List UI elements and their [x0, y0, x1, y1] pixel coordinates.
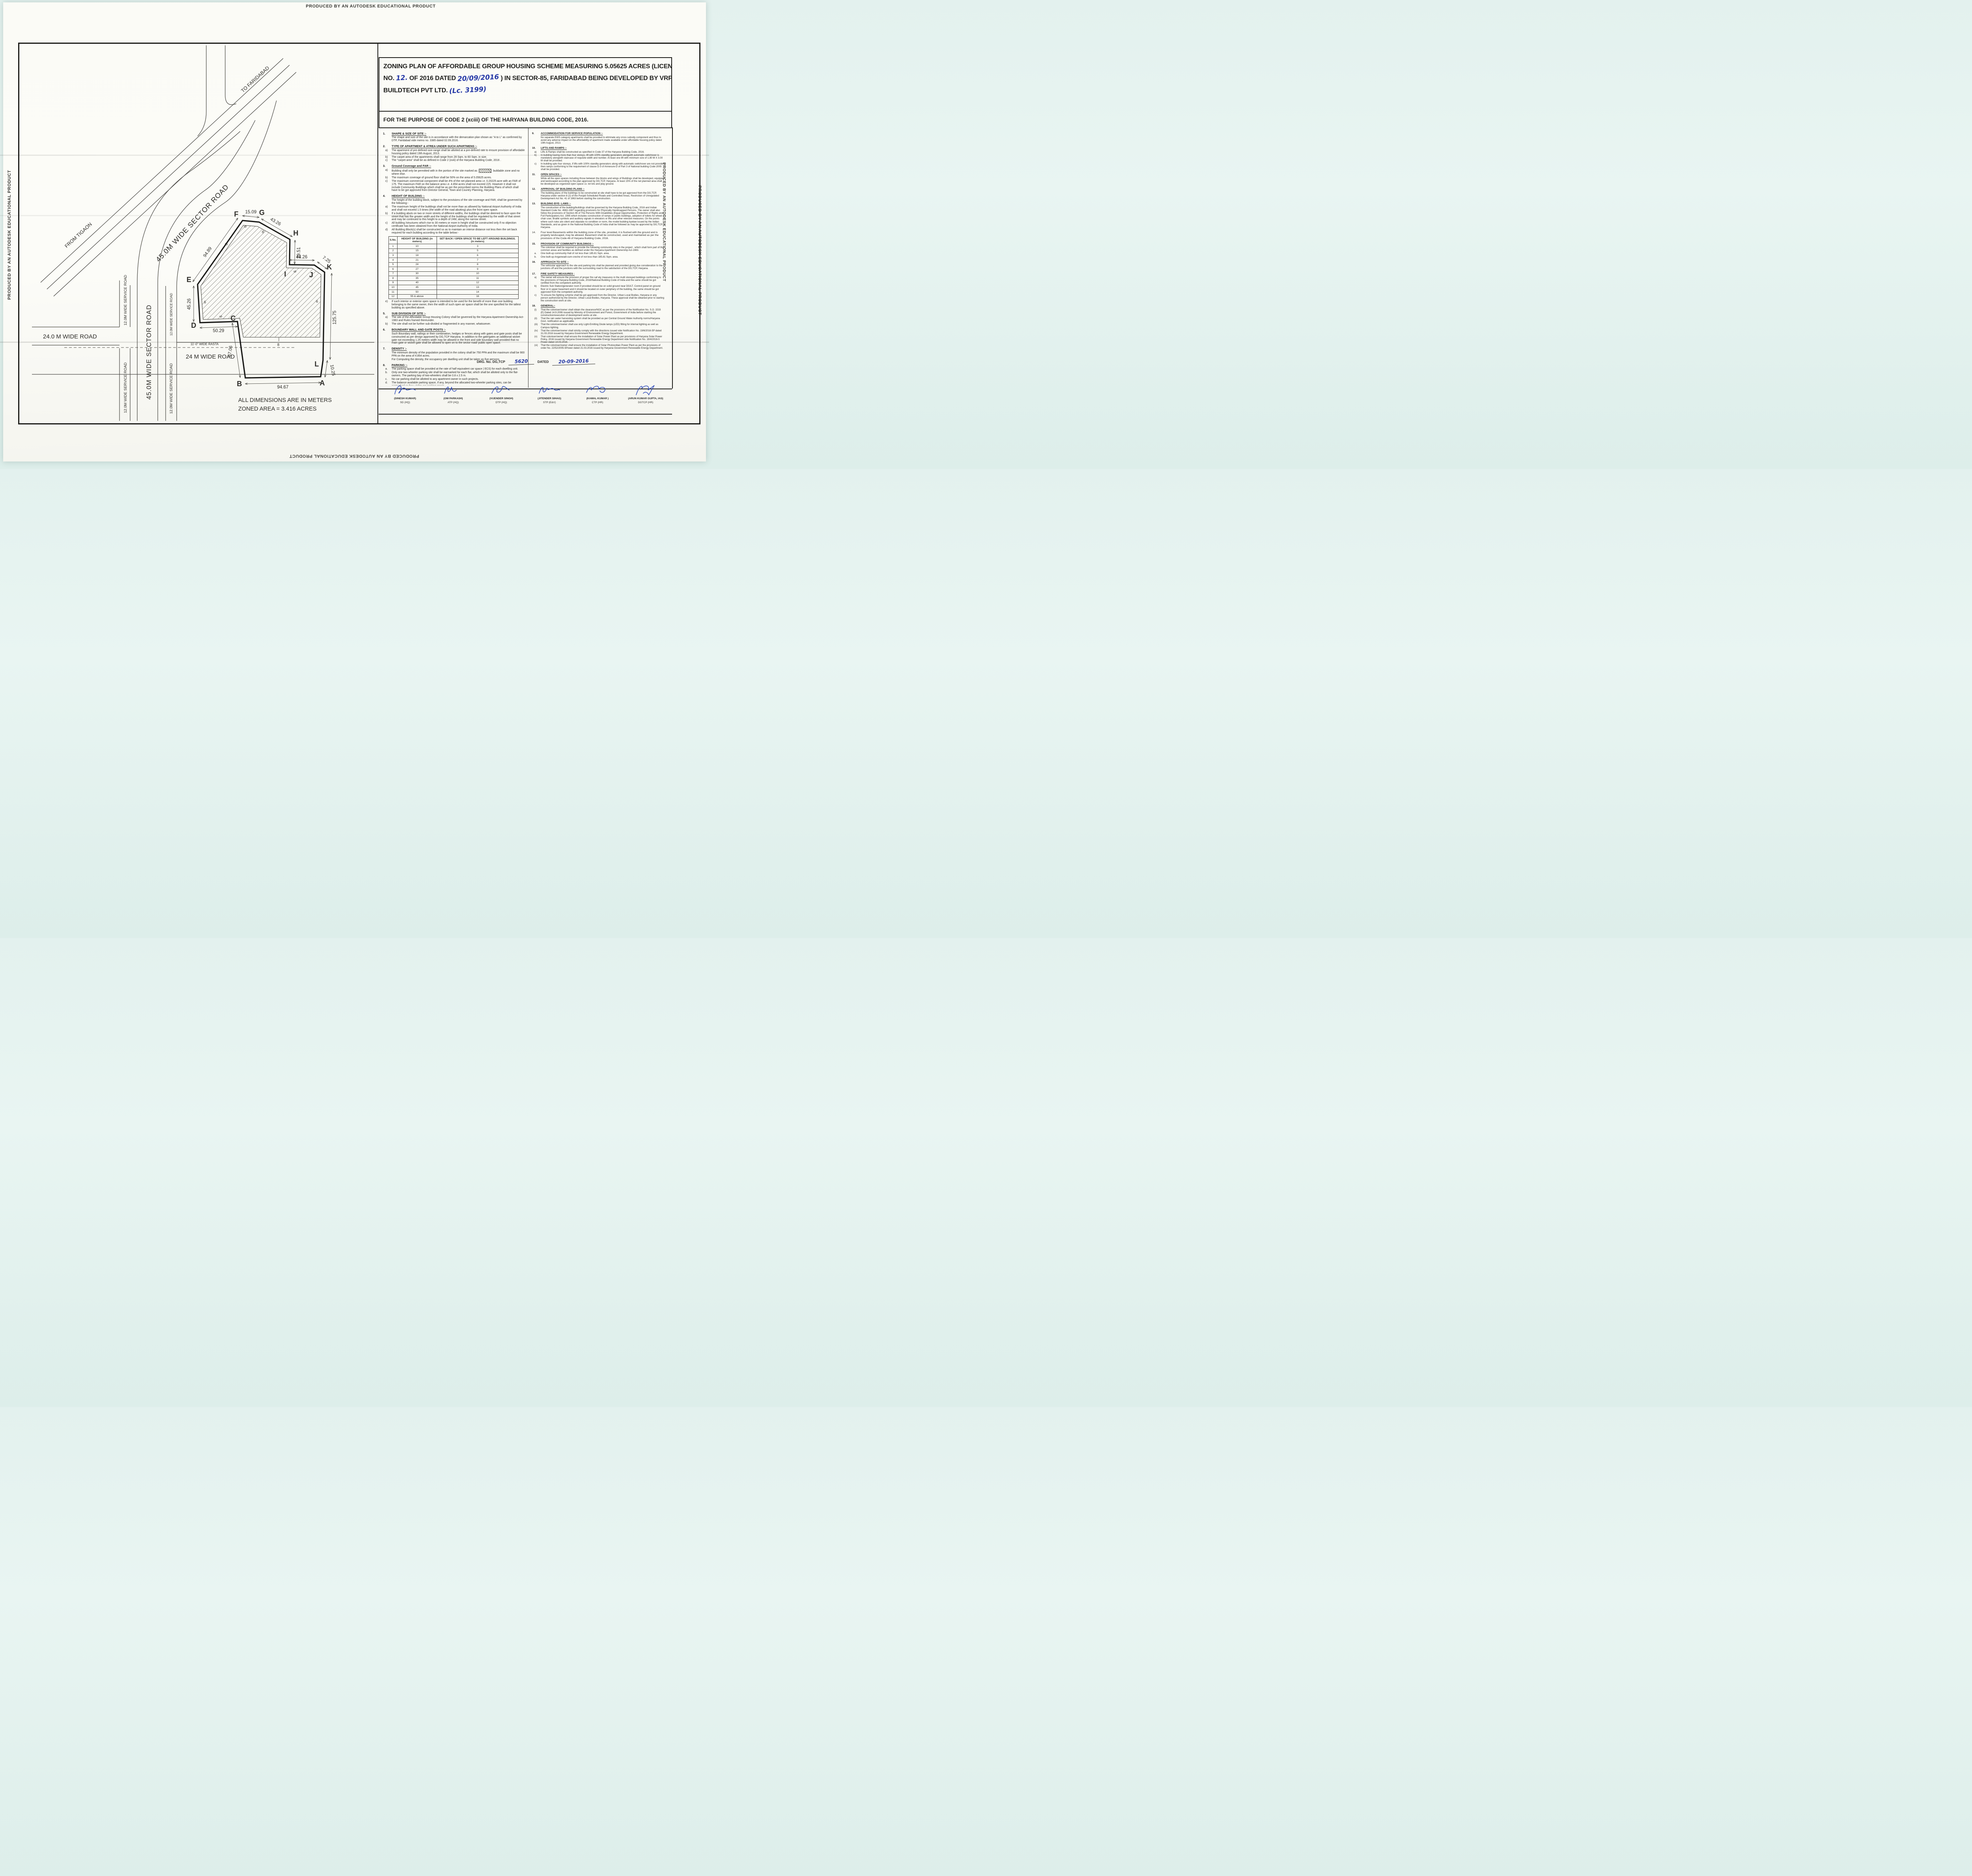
clause-text: Lifts & Ramps shall be constructed as sp… — [541, 151, 644, 153]
section-number: 6. — [383, 328, 385, 331]
clause-item: c)The maximum commercial component shall… — [383, 180, 525, 192]
clause-label: b) — [534, 285, 537, 288]
setback-table-cell: 12 — [389, 294, 398, 299]
clause-text: The maximum coverage of ground floor sha… — [392, 176, 492, 179]
section-2: 2.TYPE OF APARTMENT & ATREA UNDER SUCH A… — [383, 145, 525, 162]
clause-item: (iii)That the coloniser/owner shall use … — [532, 323, 665, 329]
signatory-role: STP (E&V) — [525, 401, 573, 404]
setback-6: 6 — [316, 299, 318, 304]
setback-table-cell: 11 — [437, 276, 518, 281]
clause-label: c) — [534, 294, 536, 297]
setback-table: S.No.HEIGHT OF BUILDING (in meters)SET B… — [388, 236, 519, 299]
setback-table-header: HEIGHT OF BUILDING (in meters) — [397, 237, 437, 244]
clause-text: The site shall not be further sub-divide… — [392, 323, 491, 325]
clause-text: In building having more than four storey… — [541, 154, 663, 162]
section-heading-row: 11.OPEN SPACES :- — [532, 173, 665, 176]
road-label-rasta: 11'-0" WIDE RASTA — [190, 342, 219, 346]
site-plan-drawing: 15.09 43.26 29.51 44.26 7.25 94.89 45.26… — [20, 45, 376, 421]
clause-text: One built-up community Hall of not less … — [541, 252, 609, 255]
section-number: 7. — [383, 347, 385, 350]
clause-item: (i)That the coloniser/owner shall obtain… — [532, 308, 665, 317]
section-number: 4. — [383, 194, 385, 198]
setback-table-cell: 50 — [397, 290, 437, 295]
setback-6: 6 — [243, 226, 248, 228]
clause-item: (v)That coloniser/owner shall ensure the… — [532, 335, 665, 344]
section-1: 1.SHAPE & SIZE OF SITE :-The shape and s… — [383, 132, 525, 142]
setback-6: 6 — [293, 271, 297, 273]
clause-text: All building /structures which rise to 3… — [392, 222, 516, 228]
setback-table-cell: 3 — [389, 253, 398, 258]
signatory-name: (DINESH KUMAR) — [381, 397, 429, 400]
setback-table-cell: 55 & above — [397, 294, 437, 299]
section-paragraph: The shape and size of the site is in acc… — [383, 136, 525, 142]
dim-kl: 125.75 — [332, 310, 337, 324]
clause-text: Building shall only be permitted with in… — [392, 170, 477, 172]
handwritten-licence-date: 20/09/2016 — [457, 71, 499, 85]
section-heading: GENERAL:- — [541, 305, 555, 307]
section-4: 4.HEIGHT OF BUILDING :-The height of the… — [383, 194, 525, 310]
clause-item: a)The site of the Affordable Group Housi… — [383, 316, 525, 322]
clause-text: That the coloniser/owner shall strictly … — [541, 329, 661, 335]
signatory-role: CTP (HR) — [573, 401, 622, 404]
clause-item: b)The carpet area of the apartments shal… — [383, 156, 525, 159]
signatory-name: (KAMAL KUMAR ) — [573, 397, 622, 400]
road-label-service: 12.0M WIDE SERVICE ROAD — [170, 293, 173, 336]
setback-6: 6 — [219, 316, 223, 318]
clause-item: c)To ensure fire fighting scheme shall b… — [532, 294, 665, 302]
clause-item: c)In building upto four storeys, if lift… — [532, 163, 665, 171]
handwritten-licence-no: 12. — [396, 72, 408, 84]
section-heading: HEIGHT OF BUILDING :- — [392, 194, 425, 198]
autodesk-banner-left: PRODUCED BY AN AUTODESK EDUCATIONAL PROD… — [7, 134, 12, 300]
setback-table-header: S.No. — [389, 237, 398, 244]
section-number: 12. — [532, 188, 536, 191]
clause-item: b)In building having more than four stor… — [532, 154, 665, 162]
signatory-name: (JITENDER SIHAG) — [525, 397, 573, 400]
clause-text: All Building Block(s) shall be construct… — [392, 228, 517, 234]
clause-label: a) — [385, 206, 388, 209]
section-heading: PARKING :- — [392, 363, 407, 367]
setback-table-cell: 21 — [397, 258, 437, 263]
clause-label: e) — [385, 300, 388, 303]
clause-text: No car parking shall be allotted to any … — [392, 378, 479, 381]
clause-text: One built-up Anganwadi-cum-creche of not… — [541, 256, 618, 258]
clauses-column-right: 9.ACCOMMODATION FOR SERVICE POPULATION :… — [532, 132, 665, 388]
road-label-24m-left: 24.0 M WIDE ROAD — [43, 333, 97, 340]
section-heading-row: 1.SHAPE & SIZE OF SITE :- — [383, 132, 525, 135]
road-label-service: 12.0M WIDE SERVICE ROAD — [169, 363, 174, 414]
section-6: 6.BOUNDARY WALL AND GATE POSTS :-Such Bo… — [383, 328, 525, 345]
setback-table-cell: 12 — [437, 280, 518, 285]
section-number: 8. — [383, 364, 385, 367]
setback-table-row: 3186 — [389, 253, 519, 258]
section-12: 12.APPROVAL OF BUILDING PLANS :-The buil… — [532, 188, 665, 200]
clause-item: a)The owner will ensure the provision of… — [532, 276, 665, 284]
handwritten-lc-number: (Lc. 3199) — [449, 84, 487, 98]
clause-item: c.No car parking shall be allotted to an… — [383, 378, 525, 381]
clause-label: (iv) — [534, 329, 538, 332]
dim-de: 45.26 — [187, 299, 192, 310]
signature-ink — [392, 383, 418, 396]
section-paragraph: While all the open spaces including thos… — [532, 177, 665, 185]
clause-label: b. — [534, 256, 536, 258]
signatory-role: DTP (HQ) — [477, 401, 525, 404]
clause-label: a) — [534, 276, 537, 279]
section-number: 15. — [532, 243, 536, 246]
road-label-sector-vertical: 45.0M WIDE SECTOR ROAD — [146, 305, 153, 400]
clause-label: b) — [385, 212, 388, 215]
setback-table-cell: 9 — [389, 280, 398, 285]
clause-text: The maximum commercial component shall b… — [392, 180, 521, 192]
scanned-zoning-plan-page: { "edge_text": "PRODUCED BY AN AUTODESK … — [0, 0, 709, 469]
setback-table-header: SET BACK / OPEN SPACE TO BE LEFT AROUND … — [437, 237, 518, 244]
clause-label: a. — [385, 368, 388, 371]
handwritten-drg-number: 5620 — [508, 358, 534, 365]
signatory-name: (VIJENDER SINGH) — [477, 397, 525, 400]
signatory-role: ATP (HQ) — [429, 401, 477, 404]
section-17: 17.FIRE SAFETY MEASURES :a)The owner wil… — [532, 273, 665, 303]
section-5: 5.SUB DIVISION OF SITE :-a)The site of t… — [383, 312, 525, 326]
clause-label: c) — [385, 159, 388, 162]
setback-table-cell: 3 — [437, 244, 518, 249]
signatory-5: (KAMAL KUMAR )CTP (HR) — [573, 389, 622, 414]
dim-gh: 43.26 — [269, 217, 282, 227]
section-heading-row: 10.LIFTS AND RAMPS :- — [532, 147, 665, 150]
section-heading: DENSITY :- — [392, 347, 407, 350]
section-heading-row: 13.BUILDING BYE- LAWS :- — [532, 202, 665, 206]
setback-table-row: 94012 — [389, 280, 519, 285]
section-heading-row: 9.ACCOMMODATION FOR SERVICE POPULATION :… — [532, 132, 665, 135]
section-heading: LIFTS AND RAMPS :- — [541, 147, 567, 149]
setback-table-row: 2155 — [389, 249, 519, 253]
clause-text: That coloniser/owner shall ensure the in… — [541, 335, 662, 344]
buildable-zone-hatch — [201, 225, 321, 337]
clause-item: c)All building /structures which rise to… — [383, 222, 525, 228]
section-heading-row: 14.Four level Basements within the build… — [532, 231, 665, 240]
section-text: Four level Basements within the building… — [541, 231, 659, 240]
section-heading-row: 3.Ground Coverage and FAR :- — [383, 164, 525, 168]
section-13: 13.BUILDING BYE- LAWS :-The construction… — [532, 202, 665, 229]
clause-label: b) — [385, 156, 388, 159]
vertex-label-h: H — [293, 229, 299, 237]
setback-table-cell: 8 — [437, 262, 518, 267]
clause-label: b. — [385, 371, 388, 374]
signature-ink — [441, 383, 466, 396]
section-heading-row: 5.SUB DIVISION OF SITE :- — [383, 312, 525, 315]
drg-number-line: DRG. No. DG,TCP 5620 DATED 20-09-2016 — [477, 359, 598, 365]
road-label-24m-bottom: 24 M WIDE ROAD — [186, 353, 235, 360]
clause-text: Only one two-wheeler parking site shall … — [392, 371, 518, 377]
clause-text: The owner will ensure the provision of p… — [541, 276, 661, 284]
vertex-label-g: G — [259, 209, 265, 217]
vertex-label-c: C — [231, 314, 236, 322]
section-heading: ACCOMMODATION FOR SERVICE POPULATION :- — [541, 132, 603, 135]
section-heading-row: 2.TYPE OF APARTMENT & ATREA UNDER SUCH A… — [383, 145, 525, 148]
road-label-service: 12.0M WIDE SERVICE ROAD — [123, 362, 128, 413]
clause-label: a. — [534, 252, 536, 255]
setback-table-cell: 10 — [437, 271, 518, 276]
clause-text: The "carpet area" shall be as defined in… — [392, 159, 501, 162]
section-paragraph: Such Boundary wall, railings or their co… — [383, 333, 525, 345]
vertex-label-l: L — [315, 360, 319, 368]
clause-label: a) — [385, 316, 388, 319]
clause-label: d) — [385, 228, 388, 232]
clause-label: a) — [385, 169, 388, 172]
vertex-label-e: E — [187, 276, 191, 284]
setback-table-cell: 7 — [437, 258, 518, 263]
clause-label: (i) — [534, 308, 537, 311]
section-paragraph: The construction of the building/buildin… — [532, 206, 665, 229]
clause-label: (vi) — [534, 344, 538, 347]
road-label-sector-diagonal: 45.0M WIDE SECTOR ROAD — [154, 183, 230, 263]
buildable-zone-swatch — [479, 169, 491, 173]
title-line-1: ZONING PLAN OF AFFORDABLE GROUP HOUSING … — [383, 61, 667, 72]
section-16: 16.APPROACH TO SITE :-The vehicular appr… — [532, 261, 665, 270]
signatory-2: (OM PARKASH)ATP (HQ) — [429, 389, 477, 414]
clause-label: d. — [385, 381, 388, 385]
setback-table-row: 1103 — [389, 244, 519, 249]
clause-item: a)The maximum height of the buildings sh… — [383, 206, 525, 212]
signature-ink — [585, 383, 610, 396]
clause-item: a)Building shall only be permitted with … — [383, 169, 525, 176]
setback-table-cell: 14 — [437, 290, 518, 295]
setback-table-cell: 10 — [389, 285, 398, 290]
clause-label: a) — [534, 151, 537, 153]
clause-text: That the coloniser/owner shall use only … — [541, 323, 658, 329]
setback-table-cell: 6 — [389, 267, 398, 272]
section-number: 13. — [532, 202, 536, 206]
setback-table-row: 104513 — [389, 285, 519, 290]
section-number: 16. — [532, 261, 536, 264]
section-heading-row: 16.APPROACH TO SITE :- — [532, 261, 665, 264]
section-8: 8.PARKING :-a.The parking space shall be… — [383, 364, 525, 385]
vertex-label-j: J — [309, 271, 313, 279]
clauses-column-left: 1.SHAPE & SIZE OF SITE :-The shape and s… — [383, 132, 525, 385]
signatory-role: SD (HQ) — [381, 401, 429, 404]
clause-item: b)Electric Sub Station/generator room if… — [532, 285, 665, 293]
clause-label: c) — [385, 222, 388, 225]
clause-item: e)If such interior or exterior open spac… — [383, 300, 525, 310]
clause-text: That the coloniser/owner shall ensure th… — [541, 344, 663, 349]
setback-table-cell: 1 — [389, 244, 398, 249]
vertex-label-a: A — [320, 379, 325, 387]
section-3: 3.Ground Coverage and FAR :-a)Building s… — [383, 164, 525, 192]
signatory-3: (VIJENDER SINGH)DTP (HQ) — [477, 389, 525, 414]
column-divider — [528, 128, 528, 388]
setback-table-cell: 45 — [397, 285, 437, 290]
signatory-4: (JITENDER SIHAG)STP (E&V) — [525, 389, 573, 414]
vertex-label-b: B — [237, 380, 242, 388]
title-line-3: BUILDTECH PVT LTD. (Lc. 3199) — [383, 84, 667, 97]
purpose-text: FOR THE PURPOSE OF CODE 2 (xciii) OF THE… — [383, 117, 588, 123]
clause-item: a)Lifts & Ramps shall be constructed as … — [532, 151, 665, 153]
section-number: 3. — [383, 164, 385, 168]
section-number: 14. — [532, 231, 536, 234]
signature-ink — [537, 383, 562, 396]
section-heading-row: 12.APPROVAL OF BUILDING PLANS :- — [532, 188, 665, 191]
signature-ink — [489, 383, 514, 396]
signature-ink — [633, 383, 658, 396]
clause-item: b)The site shall not be further sub-divi… — [383, 323, 525, 326]
clause-item: (ii)That the rain water harvesting syste… — [532, 317, 665, 323]
panel-divider — [377, 44, 378, 423]
autodesk-banner-bottom: PRODUCED BY AN AUTODESK EDUCATIONAL PROD… — [256, 454, 453, 458]
right-margin-divider — [672, 127, 673, 389]
signatory-6: (ARUN KUMAR GUPTA, IAS)DGTCP (HR) — [622, 389, 670, 414]
clause-item: b)The maximum coverage of ground floor s… — [383, 176, 525, 179]
setback-table-cell: 10 — [397, 244, 437, 249]
vertex-label-d: D — [191, 321, 196, 329]
section-paragraph: The vehicular approach to the site and p… — [532, 264, 665, 270]
section-heading: APPROVAL OF BUILDING PLANS :- — [541, 188, 585, 191]
section-number: 5. — [383, 312, 385, 315]
note-dimensions: ALL DIMENSIONS ARE IN METERS — [238, 397, 332, 404]
clause-text: If such interior or exterior open space … — [392, 300, 521, 309]
clause-item: b.One built-up Anganwadi-cum-creche of n… — [532, 256, 665, 258]
dim-ef: 94.89 — [202, 246, 213, 258]
section-number: 17. — [532, 273, 536, 276]
section-number: 2. — [383, 145, 385, 148]
dim-dc: 50.29 — [213, 329, 224, 333]
clause-item: a.The parking space shall be provided at… — [383, 368, 525, 371]
section-heading: OPEN SPACES :- — [541, 173, 562, 176]
clause-text: Electric Sub Station/generator room if p… — [541, 285, 661, 293]
road-label-to-faridabad: TO FARIDABAD — [240, 65, 271, 93]
title-line-2: NO. 12. OF 2016 DATED 20/09/2016 ) IN SE… — [383, 72, 667, 84]
section-heading: APPROACH TO SITE :- — [541, 261, 569, 263]
setback-table-row: 6279 — [389, 267, 519, 272]
section-14: 14.Four level Basements within the build… — [532, 231, 665, 240]
clause-text: The maximum height of the buildings shal… — [392, 206, 521, 211]
section-9: 9.ACCOMMODATION FOR SERVICE POPULATION :… — [532, 132, 665, 144]
setback-table-cell: 7 — [389, 271, 398, 276]
section-heading-row: 7.DENSITY :- — [383, 347, 525, 350]
section-15: 15.PROVISION OF COMMUNITY BUILDINGS :-Th… — [532, 243, 665, 258]
section-number: 11. — [532, 173, 536, 176]
handwritten-drg-date: 20-09-2016 — [552, 358, 595, 366]
setback-table-cell: 8 — [389, 276, 398, 281]
section-paragraph: The coloniser shall be required to provi… — [532, 246, 665, 252]
clause-label: c) — [534, 163, 536, 165]
signature-block: (DINESH KUMAR)SD (HQ)(OM PARKASH)ATP (HQ… — [379, 389, 672, 415]
dim-ba: 94.67 — [277, 385, 289, 390]
clause-item: c)The "carpet area" shall be as defined … — [383, 159, 525, 162]
autodesk-banner-top: PRODUCED BY AN AUTODESK EDUCATIONAL PROD… — [276, 4, 465, 9]
section-heading: BOUNDARY WALL AND GATE POSTS :- — [392, 328, 446, 331]
vertex-label-i: I — [284, 270, 286, 278]
north-road-right-edge — [225, 45, 236, 105]
section-paragraph: No separate EWS category apartments shal… — [532, 136, 665, 144]
setback-table-cell: 24 — [397, 262, 437, 267]
clause-item: b)If a building abuts on two or more str… — [383, 212, 525, 222]
setback-table-cell: 9 — [437, 267, 518, 272]
signatory-name: (OM PARKASH) — [429, 397, 477, 400]
clause-item: (iv)That the coloniser/owner shall stric… — [532, 329, 665, 335]
clause-item: (vi)That the coloniser/owner shall ensur… — [532, 344, 665, 349]
drg-dated-label: DATED — [538, 360, 549, 364]
section-heading-row: 17.FIRE SAFETY MEASURES : — [532, 273, 665, 276]
clause-item: d)All Building Block(s) shall be constru… — [383, 228, 525, 235]
section-heading: FIRE SAFETY MEASURES : — [541, 273, 575, 275]
section-heading: TYPE OF APARTMENT & ATREA UNDER SUCH APA… — [392, 144, 477, 148]
setback-table-row: 83511 — [389, 276, 519, 281]
setback-table-row: 73010 — [389, 271, 519, 276]
setback-table-cell: 6 — [437, 253, 518, 258]
setback-8: 8 — [277, 343, 279, 347]
setback-table-cell: 27 — [397, 267, 437, 272]
title-block: ZONING PLAN OF AFFORDABLE GROUP HOUSING … — [379, 57, 672, 112]
section-number: 1. — [383, 132, 385, 135]
road-label-from-tigaon: FROM TIGAON — [64, 221, 93, 249]
section-heading: SHAPE & SIZE OF SITE :- — [392, 132, 426, 135]
road-label-service: 12.0M WIDE SERVICE ROAD — [123, 275, 128, 325]
clause-label: c) — [385, 180, 388, 183]
section-number: 10. — [532, 147, 536, 150]
clause-text: To ensure fire fighting scheme shall be … — [541, 294, 664, 302]
clause-text: The parking space shall be provided at t… — [392, 368, 518, 370]
signatory-name: (ARUN KUMAR GUPTA, IAS) — [622, 397, 670, 400]
setback-table-row: 115014 — [389, 290, 519, 295]
clause-text: The site of the Affordable Group Housing… — [392, 316, 524, 322]
section-heading: Ground Coverage and FAR :- — [392, 164, 431, 168]
clause-item: b.Only one two-wheeler parking site shal… — [383, 371, 525, 377]
section-heading-row: 4.HEIGHT OF BUILDING :- — [383, 194, 525, 198]
setback-table-cell: 15 — [397, 249, 437, 253]
clause-item: a.One built-up community Hall of not les… — [532, 252, 665, 255]
setback-6: 6 — [204, 300, 206, 305]
section-heading: BUILDING BYE- LAWS :- — [541, 202, 571, 205]
clause-text: In building upto four storeys, if lifts … — [541, 163, 665, 171]
signatory-role: DGTCP (HR) — [622, 401, 670, 404]
drg-label: DRG. No. DG,TCP — [477, 360, 505, 364]
vertex-label-k: K — [327, 263, 332, 271]
setback-table-row: 4217 — [389, 258, 519, 263]
setback-table-row: 5248 — [389, 262, 519, 267]
section-paragraph: The building plans of the buildings to b… — [532, 192, 665, 200]
clause-label: (iii) — [534, 323, 538, 326]
vertex-label-f: F — [234, 210, 239, 218]
section-11: 11.OPEN SPACES :-While all the open spac… — [532, 173, 665, 185]
setback-table-cell: 18 — [397, 253, 437, 258]
section-heading-row: 15.PROVISION OF COMMUNITY BUILDINGS :- — [532, 243, 665, 246]
note-zoned-area: ZONED AREA = 3.416 ACRES — [238, 406, 317, 412]
clause-text: That the rain water harvesting system sh… — [541, 317, 660, 323]
drawing-frame: 15.09 43.26 29.51 44.26 7.25 94.89 45.26… — [18, 43, 700, 424]
section-number: 9. — [532, 132, 534, 135]
setback-table-cell: 2 — [389, 249, 398, 253]
clause-label: (v) — [534, 335, 537, 338]
purpose-row: FOR THE PURPOSE OF CODE 2 (xciii) OF THE… — [379, 112, 672, 128]
signatory-1: (DINESH KUMAR)SD (HQ) — [381, 389, 429, 414]
dim-fg: 15.09 — [245, 210, 257, 215]
setback-table-cell: 30 — [397, 271, 437, 276]
setback-table-cell: 35 — [397, 276, 437, 281]
clause-text: That the coloniser/owner shall obtain th… — [541, 308, 661, 317]
setback-table-row: 1255 & above16 — [389, 294, 519, 299]
clause-label: (ii) — [534, 317, 537, 320]
dim-ij: 44.26 — [296, 255, 308, 260]
setback-table-cell: 5 — [389, 262, 398, 267]
setback-table-cell: 11 — [389, 290, 398, 295]
north-road-left-edge — [198, 45, 206, 136]
section-18: 18.GENERAL:-(i)That the coloniser/owner … — [532, 305, 665, 349]
clause-item: a)The apartment of pre-defined size-rang… — [383, 149, 525, 155]
setback-table-cell: 13 — [437, 285, 518, 290]
section-paragraph: The minimum density of the population pr… — [383, 351, 525, 358]
section-heading-row: 6.BOUNDARY WALL AND GATE POSTS :- — [383, 328, 525, 331]
clause-label: b) — [385, 176, 388, 179]
section-paragraph: The height of the building block, subjec… — [383, 199, 525, 205]
